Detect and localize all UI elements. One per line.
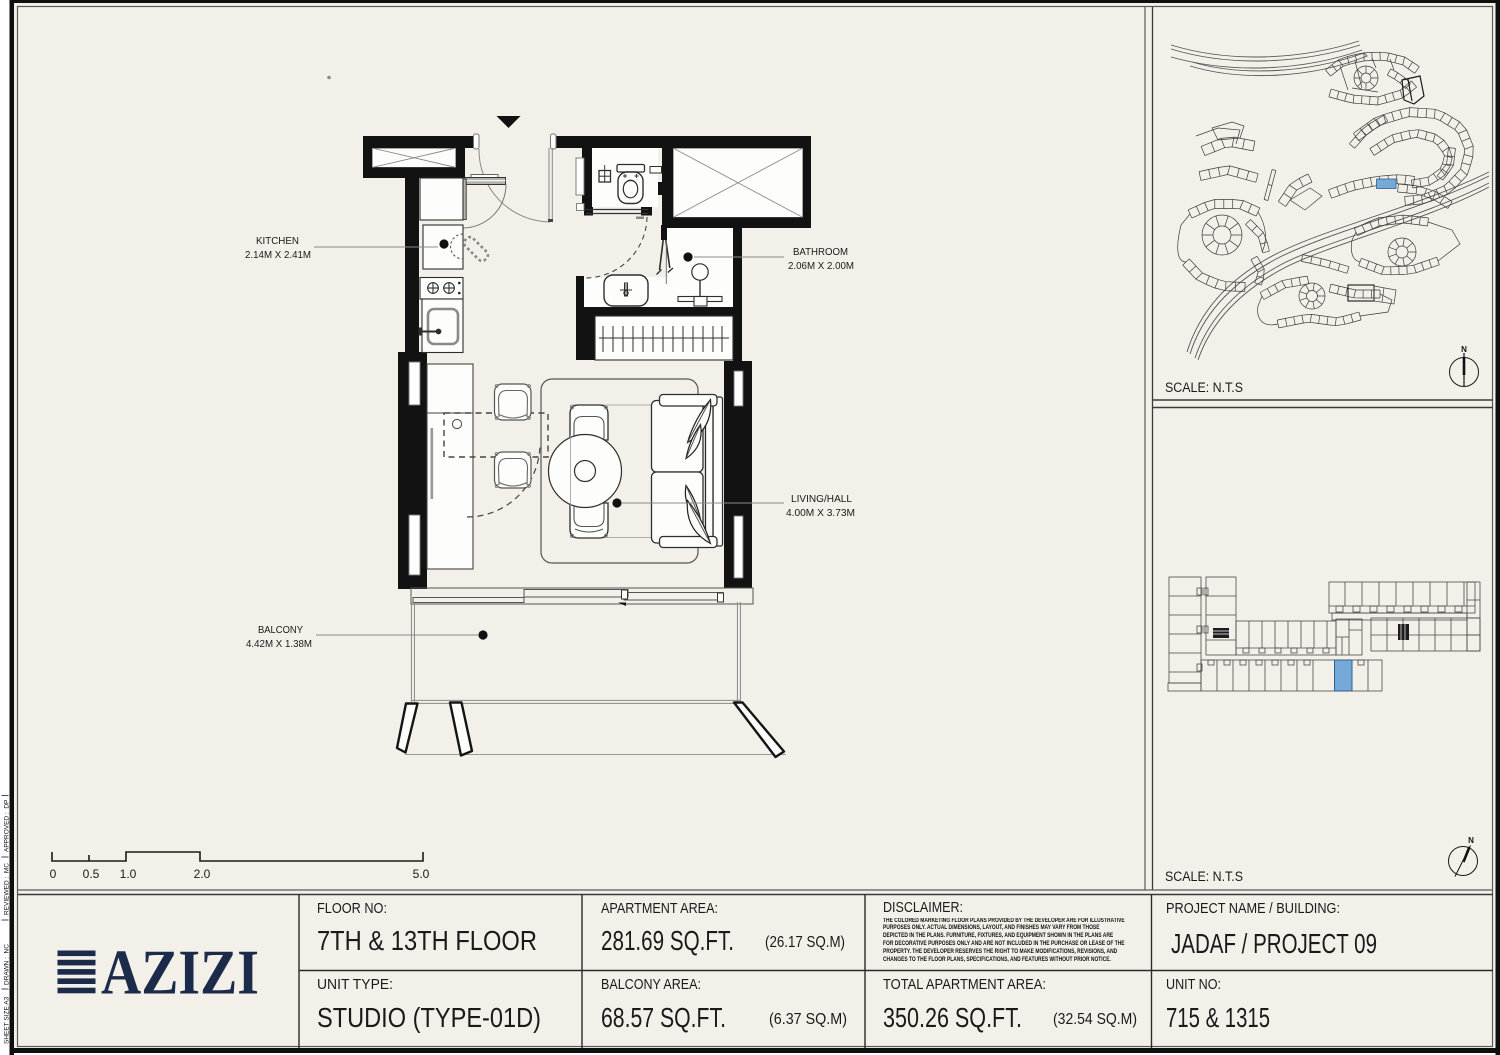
svg-text:(32.54 SQ.M): (32.54 SQ.M) bbox=[1053, 1011, 1137, 1028]
svg-text:DISCLAIMER:: DISCLAIMER: bbox=[883, 899, 963, 916]
svg-text:BALCONY: BALCONY bbox=[258, 624, 303, 636]
svg-text:4.00M X 3.73M: 4.00M X 3.73M bbox=[786, 507, 855, 519]
svg-text:LIVING/HALL: LIVING/HALL bbox=[791, 493, 852, 505]
svg-text:N: N bbox=[1468, 836, 1474, 845]
svg-text:7TH & 13TH FLOOR: 7TH & 13TH FLOOR bbox=[317, 925, 537, 956]
svg-text:715 & 1315: 715 & 1315 bbox=[1166, 1002, 1270, 1033]
svg-text:BALCONY AREA:: BALCONY AREA: bbox=[601, 976, 701, 993]
svg-text:BATHROOM: BATHROOM bbox=[793, 246, 848, 258]
svg-text:281.69 SQ.FT.: 281.69 SQ.FT. bbox=[601, 925, 734, 956]
svg-text:2.0: 2.0 bbox=[194, 867, 211, 881]
svg-text:FLOOR NO:: FLOOR NO: bbox=[317, 900, 387, 917]
svg-text:N: N bbox=[1461, 345, 1467, 354]
svg-text:5.0: 5.0 bbox=[413, 867, 430, 881]
svg-text:1.0: 1.0 bbox=[120, 867, 137, 881]
svg-text:0.5: 0.5 bbox=[83, 867, 100, 881]
svg-text:STUDIO (TYPE-01D): STUDIO (TYPE-01D) bbox=[317, 1002, 541, 1033]
svg-text:PROJECT NAME / BUILDING:: PROJECT NAME / BUILDING: bbox=[1166, 900, 1340, 917]
svg-text:DRAWN : NC: DRAWN : NC bbox=[4, 944, 11, 985]
svg-text:(26.17 SQ.M): (26.17 SQ.M) bbox=[765, 934, 845, 951]
svg-text:SHEET SIZE A3: SHEET SIZE A3 bbox=[4, 996, 11, 1044]
svg-text:SCALE: N.T.S: SCALE: N.T.S bbox=[1165, 380, 1243, 395]
svg-text:2.14M X 2.41M: 2.14M X 2.41M bbox=[245, 249, 311, 261]
svg-text:TOTAL APARTMENT AREA:: TOTAL APARTMENT AREA: bbox=[883, 976, 1046, 993]
svg-text:(6.37 SQ.M): (6.37 SQ.M) bbox=[769, 1011, 847, 1028]
svg-text:350.26 SQ.FT.: 350.26 SQ.FT. bbox=[883, 1002, 1022, 1033]
svg-text:68.57 SQ.FT.: 68.57 SQ.FT. bbox=[601, 1002, 726, 1033]
svg-text:UNIT TYPE:: UNIT TYPE: bbox=[317, 976, 393, 993]
svg-text:APPROVED : DP: APPROVED : DP bbox=[4, 800, 11, 852]
svg-text:AZIZI: AZIZI bbox=[101, 938, 259, 1008]
svg-text:KITCHEN: KITCHEN bbox=[256, 235, 299, 247]
svg-text:JADAF / PROJECT 09: JADAF / PROJECT 09 bbox=[1171, 928, 1377, 959]
svg-text:REVIEWED : MC: REVIEWED : MC bbox=[4, 863, 11, 915]
svg-text:2.06M X 2.00M: 2.06M X 2.00M bbox=[788, 260, 854, 272]
svg-text:4.42M X 1.38M: 4.42M X 1.38M bbox=[246, 638, 312, 650]
svg-text:SCALE: N.T.S: SCALE: N.T.S bbox=[1165, 869, 1243, 884]
svg-text:0: 0 bbox=[50, 867, 57, 881]
svg-text:UNIT NO:: UNIT NO: bbox=[1166, 976, 1221, 993]
svg-text:APARTMENT AREA:: APARTMENT AREA: bbox=[601, 900, 718, 917]
